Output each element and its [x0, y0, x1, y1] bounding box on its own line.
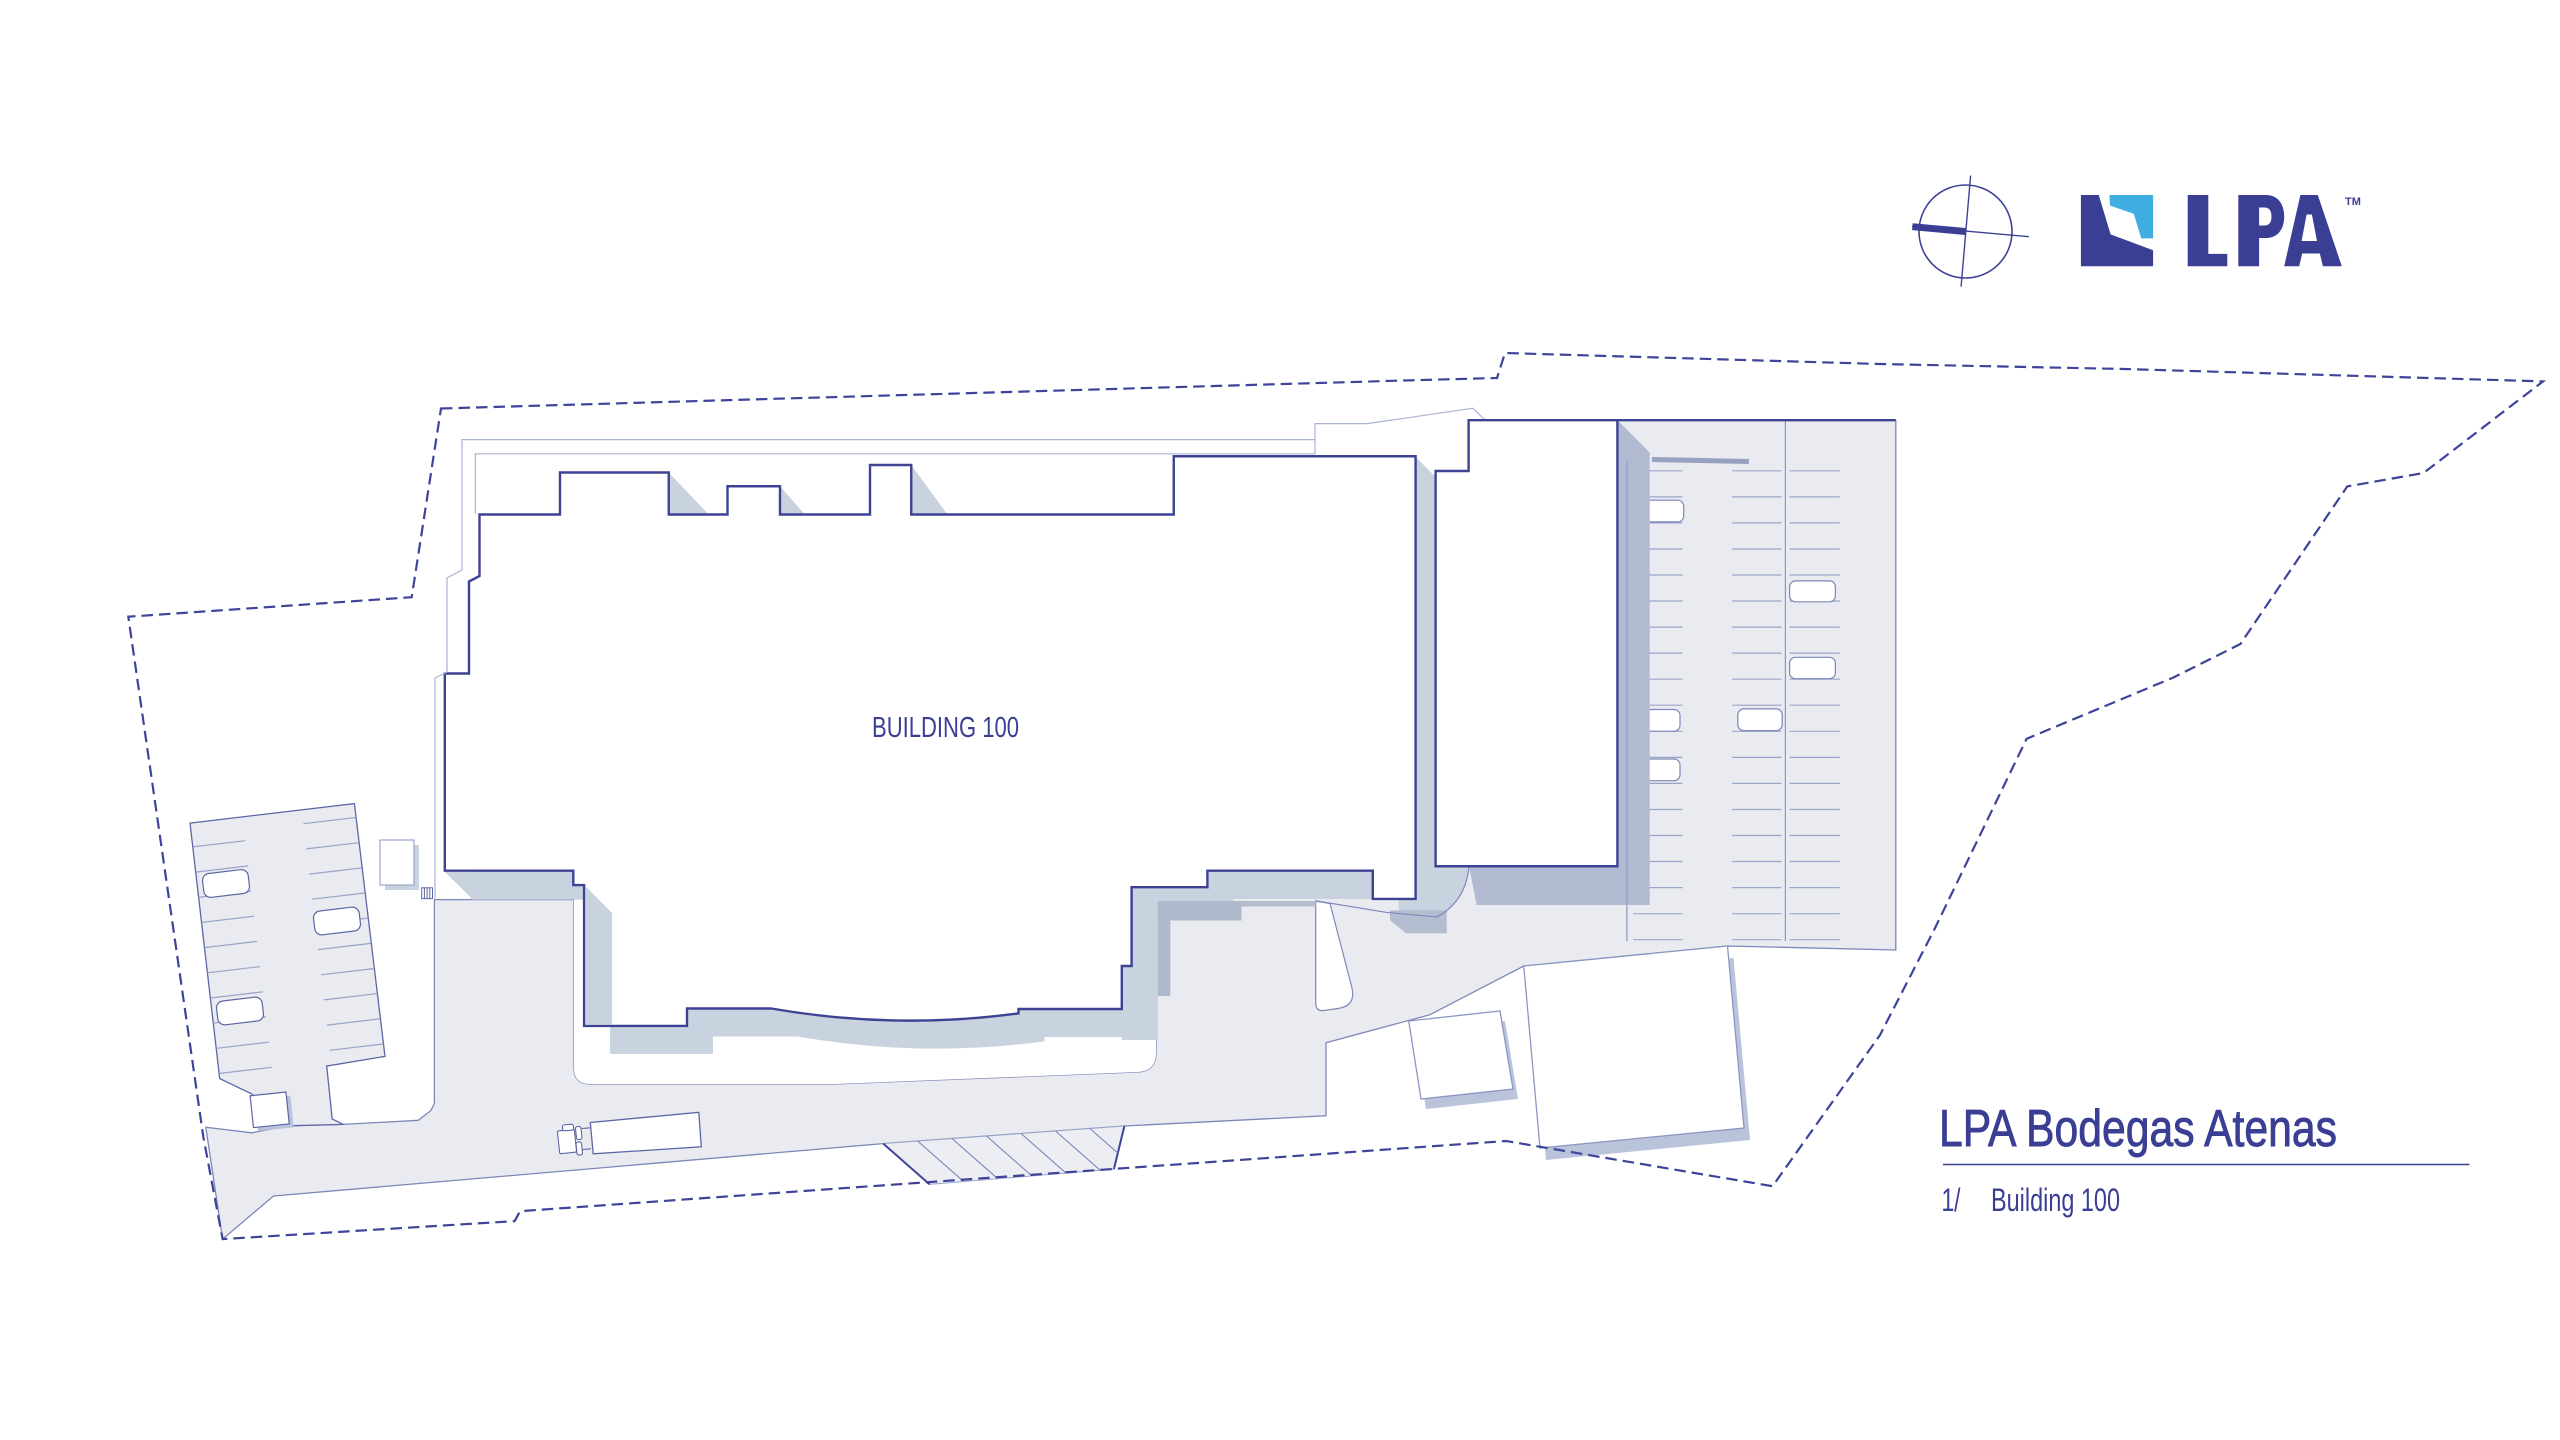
svg-text:BUILDING 100: BUILDING 100: [872, 712, 1019, 744]
svg-text:1/: 1/: [1942, 1182, 1961, 1218]
svg-text:Building 100: Building 100: [1991, 1182, 2120, 1218]
svg-text:TM: TM: [2345, 196, 2361, 208]
svg-text:LPA Bodegas Atenas: LPA Bodegas Atenas: [1939, 1100, 2337, 1158]
